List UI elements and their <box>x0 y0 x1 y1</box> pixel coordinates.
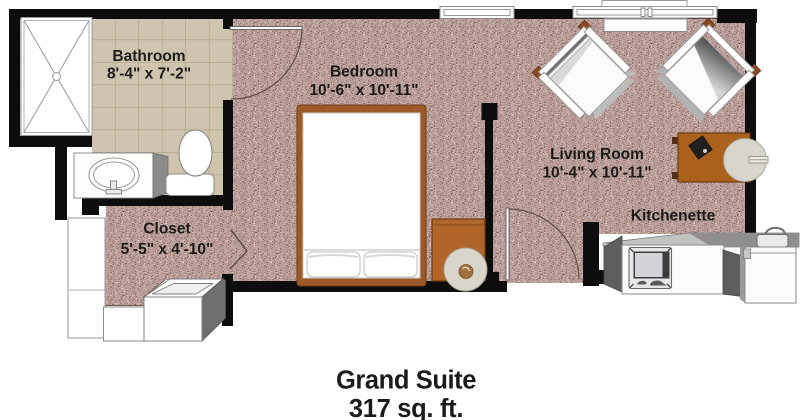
svg-text:10'-6" x 10'-11": 10'-6" x 10'-11" <box>309 82 418 99</box>
svg-text:Living Room: Living Room <box>550 146 644 163</box>
svg-text:Closet: Closet <box>143 221 190 238</box>
svg-text:317 sq. ft.: 317 sq. ft. <box>349 395 463 420</box>
svg-text:Bedroom: Bedroom <box>330 64 398 81</box>
svg-text:5'-5" x 4'-10": 5'-5" x 4'-10" <box>121 241 214 258</box>
svg-text:Bathroom: Bathroom <box>112 48 185 65</box>
svg-text:8'-4" x 7'-2": 8'-4" x 7'-2" <box>107 66 191 83</box>
svg-text:Kitchenette: Kitchenette <box>631 208 716 225</box>
svg-text:10'-4" x 10'-11": 10'-4" x 10'-11" <box>542 165 651 182</box>
svg-text:Grand Suite: Grand Suite <box>336 367 476 395</box>
